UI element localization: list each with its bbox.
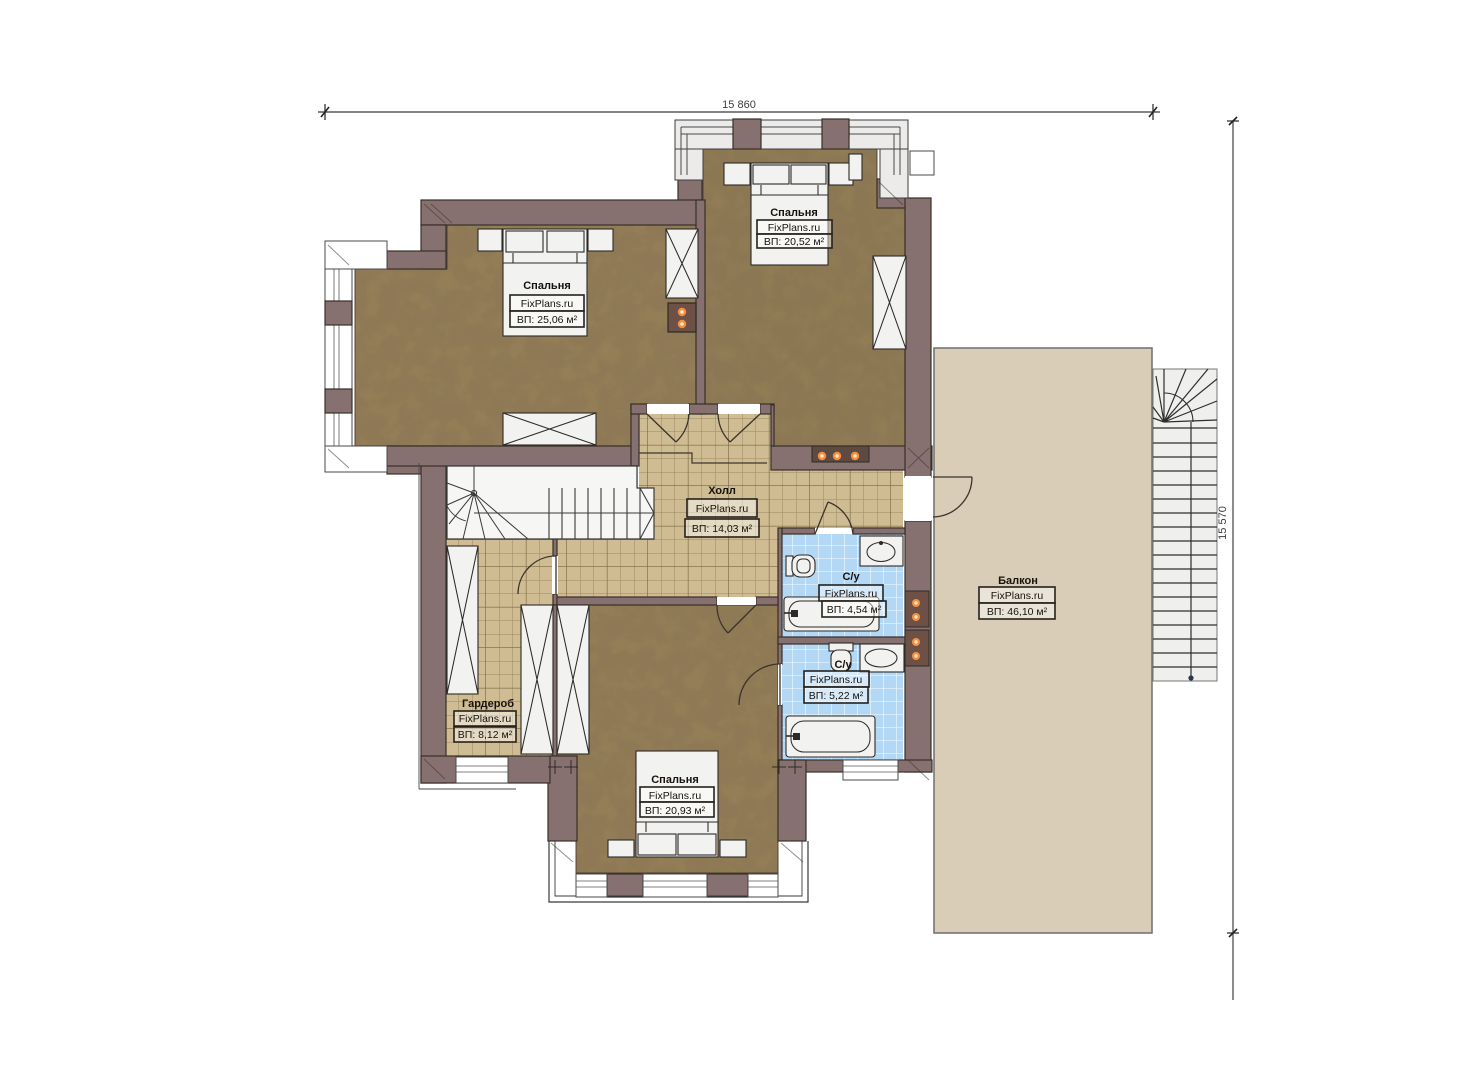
svg-text:15 860: 15 860: [722, 99, 756, 111]
svg-text:С/у: С/у: [842, 571, 860, 583]
svg-text:FixPlans.ru: FixPlans.ru: [825, 588, 878, 600]
svg-text:ВП: 8,12 м²: ВП: 8,12 м²: [458, 729, 513, 741]
svg-text:ВП: 4,54 м²: ВП: 4,54 м²: [827, 604, 882, 616]
svg-text:ВП: 46,10 м²: ВП: 46,10 м²: [987, 606, 1048, 618]
svg-text:Спальня: Спальня: [770, 207, 818, 219]
svg-text:FixPlans.ru: FixPlans.ru: [991, 590, 1044, 602]
svg-text:Спальня: Спальня: [651, 774, 699, 786]
svg-text:ВП: 25,06 м²: ВП: 25,06 м²: [517, 314, 578, 326]
svg-text:ВП: 20,52 м²: ВП: 20,52 м²: [764, 236, 825, 248]
svg-text:FixPlans.ru: FixPlans.ru: [459, 713, 512, 725]
svg-text:ВП: 14,03 м²: ВП: 14,03 м²: [692, 523, 753, 535]
svg-text:ВП: 5,22 м²: ВП: 5,22 м²: [809, 690, 864, 702]
svg-text:Холл: Холл: [708, 485, 736, 497]
svg-text:Гардероб: Гардероб: [462, 698, 514, 710]
svg-text:FixPlans.ru: FixPlans.ru: [768, 222, 821, 234]
svg-text:Балкон: Балкон: [998, 575, 1038, 587]
svg-text:FixPlans.ru: FixPlans.ru: [521, 298, 574, 310]
svg-text:FixPlans.ru: FixPlans.ru: [810, 674, 863, 686]
svg-text:15 570: 15 570: [1217, 506, 1229, 540]
svg-text:ВП: 20,93 м²: ВП: 20,93 м²: [645, 805, 706, 817]
svg-text:С/у: С/у: [834, 659, 852, 671]
svg-text:FixPlans.ru: FixPlans.ru: [649, 790, 702, 802]
svg-text:FixPlans.ru: FixPlans.ru: [696, 503, 749, 515]
svg-text:Спальня: Спальня: [523, 280, 571, 292]
